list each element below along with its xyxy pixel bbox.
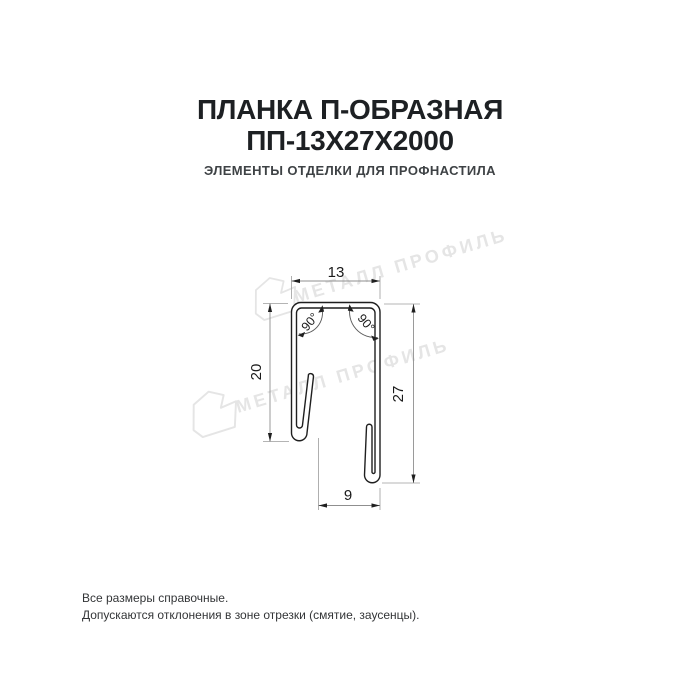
angle-left-label: 90° [299, 310, 322, 333]
metall-profil-logo-icon [186, 387, 241, 439]
watermark-1: МЕТАЛЛ ПРОФИЛЬ [249, 225, 510, 322]
dimension-right-height-label: 27 [390, 386, 407, 403]
dimension-left-height-label: 20 [248, 364, 265, 381]
product-drawing-page: ПЛАНКА П-ОБРАЗНАЯ ПП-13Х27Х2000 ЭЛЕМЕНТЫ… [0, 0, 700, 700]
dimension-left-height: 20 [248, 304, 289, 442]
footer-note-line1: Все размеры справочные. [82, 590, 419, 607]
watermark-2: МЕТАЛЛ ПРОФИЛЬ [186, 335, 452, 439]
watermark-text: МЕТАЛЛ ПРОФИЛЬ [233, 335, 451, 417]
footer-notes: Все размеры справочные. Допускаются откл… [82, 590, 419, 624]
angle-left: 90° [298, 305, 325, 337]
dimension-bottom-width-label: 9 [344, 487, 352, 504]
watermark-text: МЕТАЛЛ ПРОФИЛЬ [291, 225, 509, 307]
footer-note-line2: Допускаются отклонения в зоне отрезки (с… [82, 607, 419, 624]
dimension-right-height: 27 [382, 304, 420, 483]
dimension-top-width-label: 13 [328, 264, 345, 281]
